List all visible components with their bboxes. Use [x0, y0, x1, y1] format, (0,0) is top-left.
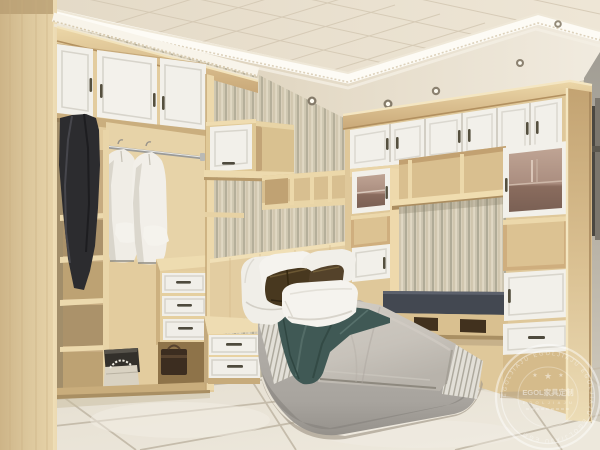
svg-text:★: ★: [532, 372, 537, 379]
svg-text:E G O L J I A J U: E G O L J I A J U: [523, 400, 573, 405]
svg-text:★: ★: [544, 371, 552, 381]
svg-text:★: ★: [558, 372, 563, 379]
svg-text:EGOL家具定制: EGOL家具定制: [522, 387, 574, 397]
